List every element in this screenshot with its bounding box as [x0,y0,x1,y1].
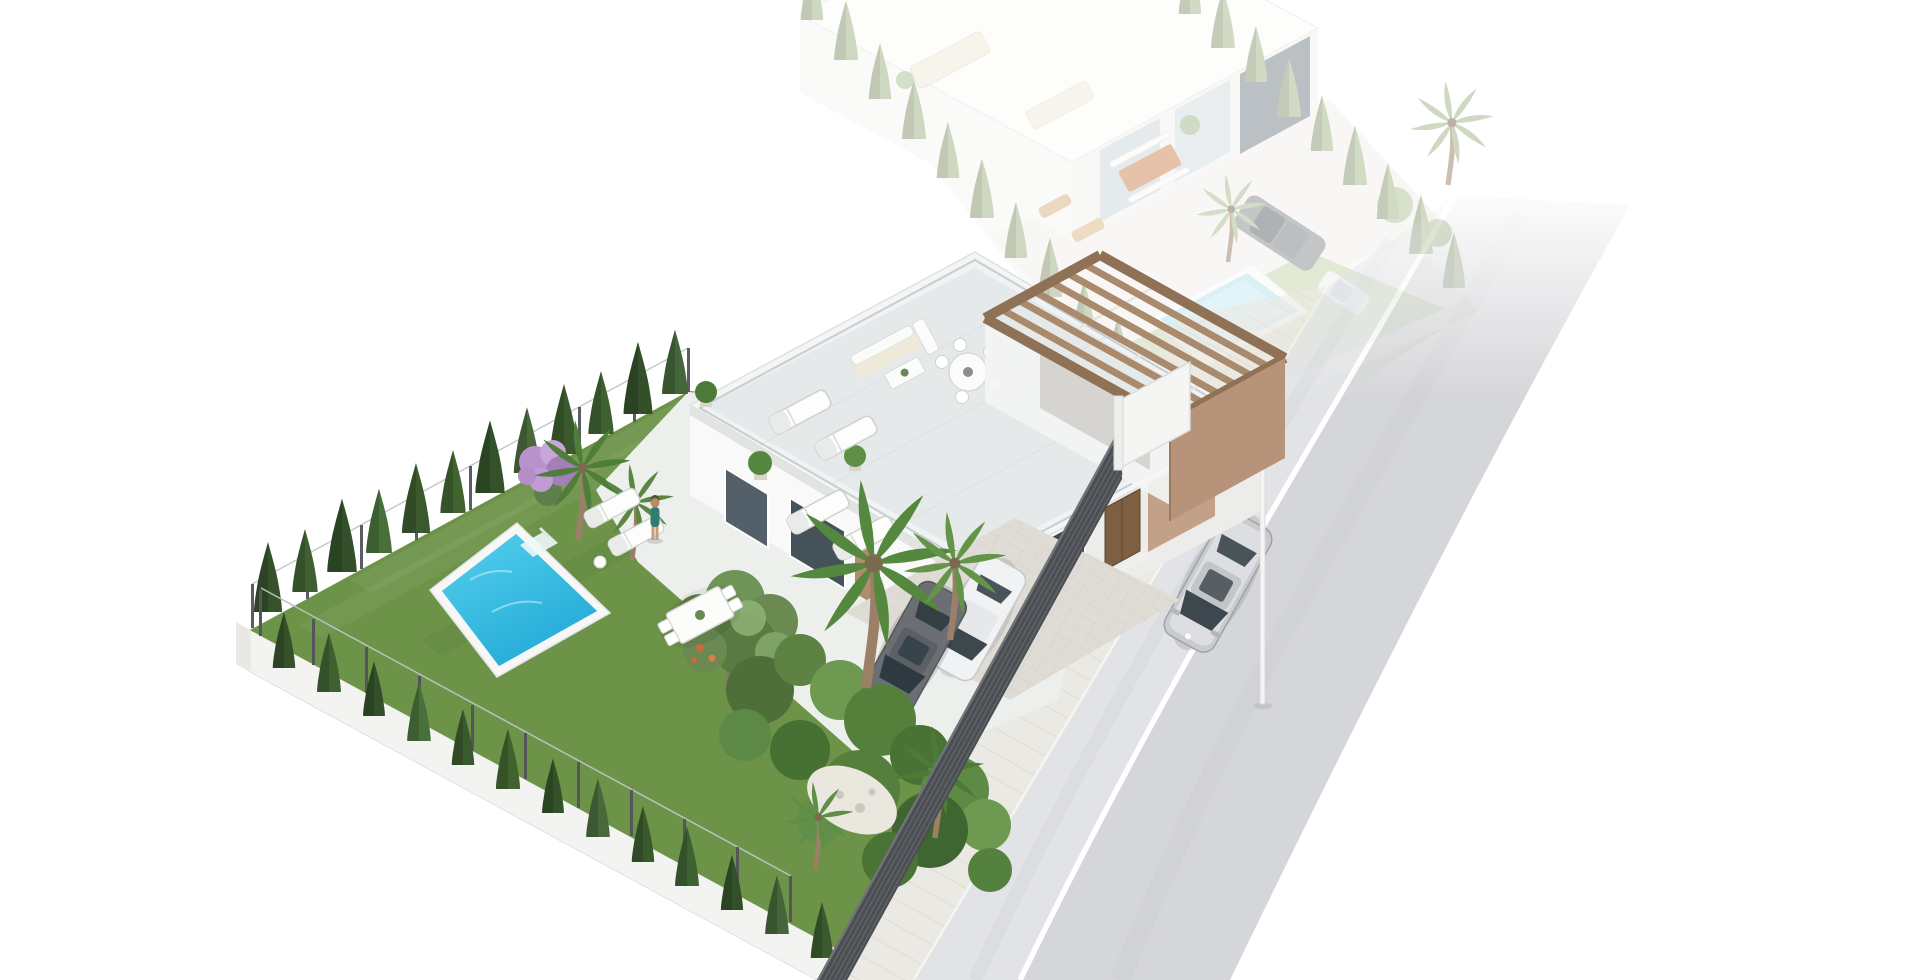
villa-render-canvas [0,0,1920,980]
chair [954,339,967,352]
gate-pillar [1114,396,1123,470]
orange-flowers [696,644,704,652]
chair [956,391,969,404]
chair [936,356,949,369]
side-table [594,556,606,568]
person-dress [651,507,660,527]
render-image [0,0,1920,980]
ghost-palm-tree [1410,81,1493,185]
boundary-wall-corner [236,622,250,672]
